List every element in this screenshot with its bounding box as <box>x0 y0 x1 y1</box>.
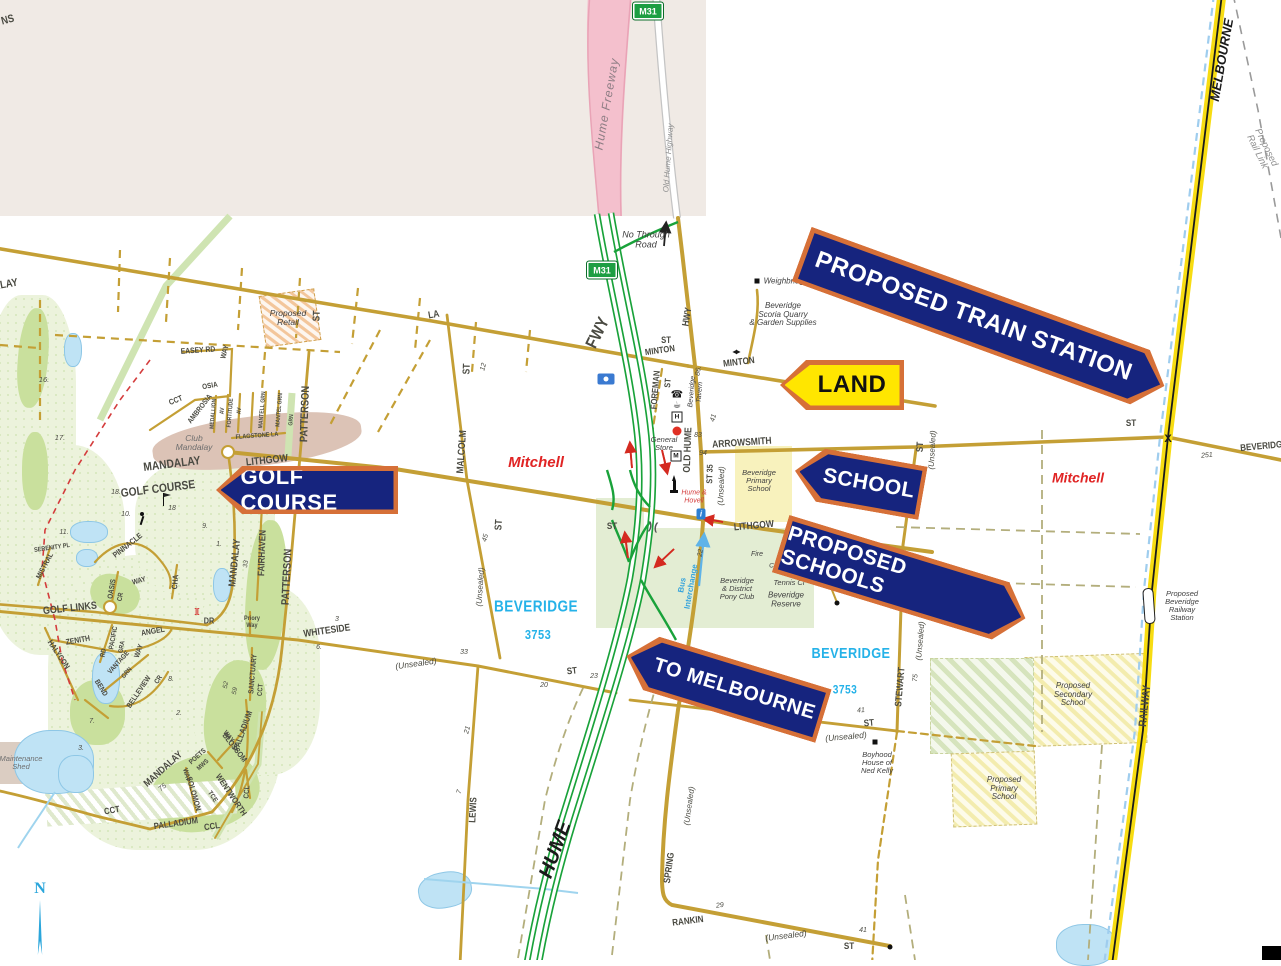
golf-course-banner: GOLF COURSE <box>216 466 398 514</box>
street-map: M31M31☎☕HMi◀▶X)(][ NSHume FreewayOld Hum… <box>0 0 1281 960</box>
annotation-banners: PROPOSED TRAIN STATION LAND GOLF COURSE … <box>0 0 1281 960</box>
corner-marker <box>1262 946 1281 960</box>
proposed-schools-banner: PROPOSED SCHOOLS <box>772 515 1034 647</box>
land-banner: LAND <box>780 360 904 410</box>
golf-course-label: GOLF COURSE <box>241 464 394 516</box>
to-melbourne-banner: TO MELBOURNE <box>618 629 831 743</box>
proposed-schools-label: PROPOSED SCHOOLS <box>778 522 1009 634</box>
school-label: SCHOOL <box>821 464 917 504</box>
land-label: LAND <box>818 371 887 399</box>
school-banner: SCHOOL <box>790 444 927 520</box>
